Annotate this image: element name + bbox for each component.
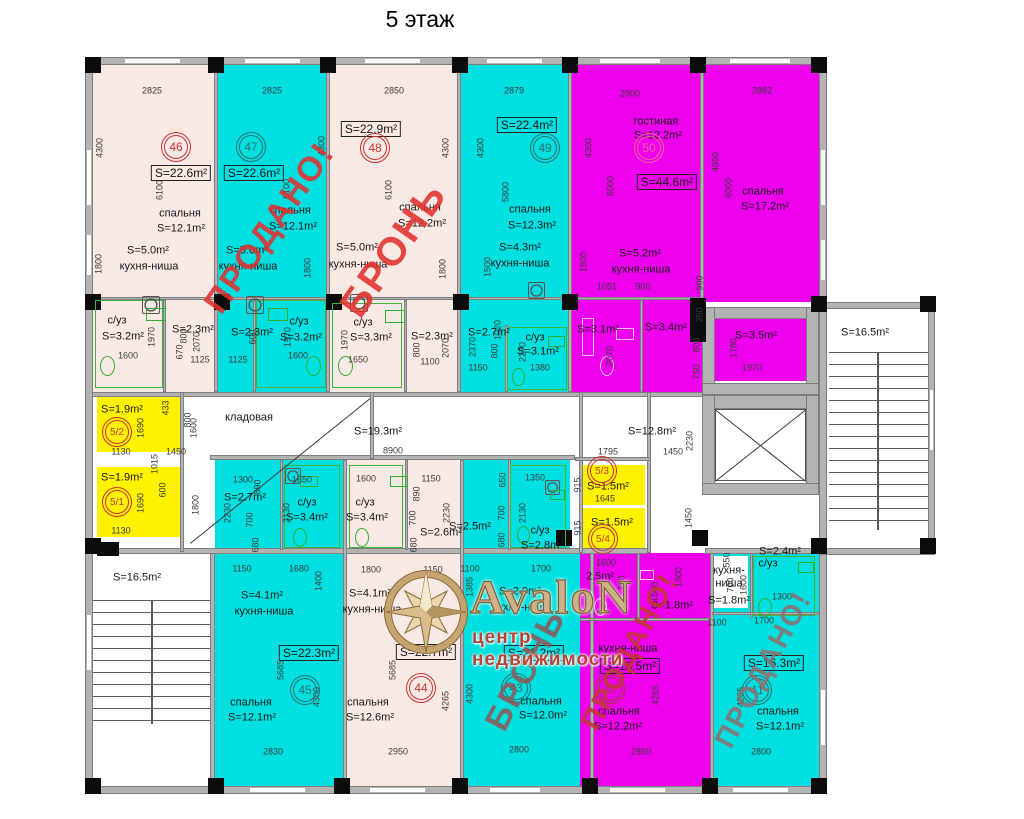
dimension-label: 1380 bbox=[530, 364, 550, 373]
dimension-label: 900 bbox=[696, 275, 705, 290]
dimension-label: 1600 bbox=[596, 559, 616, 568]
dimension-label: 915 bbox=[574, 520, 583, 535]
dimension-label: 670 bbox=[176, 344, 185, 359]
wall bbox=[214, 64, 218, 392]
dimension-label: 2130 bbox=[283, 503, 292, 523]
room-label: S=12.1m² bbox=[228, 713, 276, 724]
washer-icon bbox=[246, 296, 264, 314]
structural-column bbox=[452, 57, 468, 73]
room-label: S=16.5m² bbox=[841, 328, 889, 339]
dimension-label: 800 bbox=[693, 337, 702, 352]
window-opening bbox=[821, 690, 825, 745]
wall bbox=[92, 297, 702, 300]
room-label: S=4.1m² bbox=[241, 591, 283, 602]
toilet-icon bbox=[355, 528, 369, 547]
room-label: S=4.3m² bbox=[499, 243, 541, 254]
washer-icon bbox=[528, 282, 545, 299]
dimension-label: 6100 bbox=[385, 180, 394, 200]
structural-column bbox=[690, 57, 706, 73]
window-opening bbox=[821, 150, 825, 205]
wall bbox=[710, 553, 714, 786]
dimension-label: 1645 bbox=[595, 495, 615, 504]
dimension-label: 1051 bbox=[597, 283, 617, 292]
dimension-label: 2230 bbox=[443, 503, 452, 523]
window-opening bbox=[490, 788, 540, 792]
window-opening bbox=[87, 235, 91, 275]
dimension-label: 1800 bbox=[361, 566, 381, 575]
window-opening bbox=[87, 150, 91, 205]
dimension-label: 1650 bbox=[292, 476, 312, 485]
dimension-label: 2900 bbox=[620, 90, 640, 99]
window-opening bbox=[87, 615, 91, 670]
dimension-label: 915 bbox=[574, 477, 583, 492]
dimension-label: 1970 bbox=[341, 330, 350, 350]
dimension-label: 4265 bbox=[442, 691, 451, 711]
wall bbox=[819, 302, 935, 309]
wall bbox=[702, 395, 715, 495]
sink-icon bbox=[146, 308, 166, 321]
structural-column bbox=[562, 57, 578, 73]
room-label: S=12.0m² bbox=[519, 711, 567, 722]
dimension-label: 2830 bbox=[263, 748, 283, 757]
wall bbox=[568, 64, 572, 392]
dimension-label: 2230 bbox=[224, 503, 233, 523]
window-opening bbox=[125, 59, 180, 63]
wall bbox=[405, 460, 408, 550]
dimension-label: 4300 bbox=[466, 684, 475, 704]
dimension-label: 1600 bbox=[740, 575, 749, 595]
structural-column bbox=[811, 778, 827, 794]
room-label: S=2.3m² bbox=[172, 325, 214, 336]
storage-unit-number: 5/1 bbox=[105, 490, 129, 514]
room-label: S=5.2m² bbox=[619, 249, 661, 260]
structural-column bbox=[582, 778, 598, 794]
apartment-number: 50 bbox=[637, 136, 661, 160]
dimension-label: 8900 bbox=[383, 447, 403, 456]
wall bbox=[806, 395, 819, 495]
compass-rose-icon bbox=[384, 570, 468, 654]
room-label: S=12.8m² bbox=[628, 427, 676, 438]
apartment-number: 49 bbox=[533, 136, 557, 160]
room-label: спальня bbox=[742, 187, 784, 198]
room-label: S=3.3m² bbox=[350, 333, 392, 344]
apartment-total-area-label: S=22.4m² bbox=[497, 117, 557, 133]
dimension-label: 4265 bbox=[652, 685, 661, 705]
dimension-label: 1690 bbox=[137, 418, 146, 438]
dimension-label: 1650 bbox=[348, 356, 368, 365]
dimension-label: 700 bbox=[409, 510, 418, 525]
room-label: с/уз bbox=[289, 317, 308, 328]
wall bbox=[806, 307, 819, 393]
dimension-label: 1600 bbox=[118, 352, 138, 361]
wall bbox=[92, 548, 648, 554]
dimension-label: 4950 bbox=[712, 152, 721, 172]
dimension-label: 6000 bbox=[725, 178, 734, 198]
structural-column bbox=[702, 778, 718, 794]
sink-icon bbox=[390, 476, 408, 487]
floor-plan: 5 этаж AvaloN центр недвижимости 2825282… bbox=[0, 0, 1024, 819]
structural-column bbox=[320, 57, 336, 73]
apartment-total-area-label: S=22.6m² bbox=[224, 165, 284, 181]
staircase-divider bbox=[877, 352, 879, 530]
room-label: S=1.5m² bbox=[591, 518, 633, 529]
structural-column bbox=[920, 538, 936, 554]
apartment-number: 45 bbox=[293, 678, 317, 702]
dimension-label: 1600 bbox=[288, 352, 308, 361]
dimension-label: 1800 bbox=[304, 258, 313, 278]
dimension-label: 1125 bbox=[228, 356, 247, 365]
dimension-label: 1150 bbox=[468, 364, 487, 373]
wall bbox=[343, 460, 347, 786]
structural-column bbox=[85, 778, 101, 794]
dimension-label: 1130 bbox=[111, 527, 130, 536]
room-label: кухня-ниша bbox=[612, 265, 671, 276]
dimension-label: 890 bbox=[413, 486, 422, 501]
wall bbox=[702, 395, 819, 409]
dimension-label: 800 bbox=[491, 343, 500, 358]
room-label: с/уз bbox=[355, 498, 374, 509]
dimension-label: 2950 bbox=[388, 748, 408, 757]
wall bbox=[702, 483, 819, 495]
dimension-label: 1970 bbox=[742, 364, 762, 373]
room-label: S=2.3m² bbox=[231, 328, 273, 339]
dimension-label: 2825 bbox=[142, 87, 162, 96]
wall bbox=[210, 553, 215, 786]
dimension-label: 1015 bbox=[151, 454, 160, 474]
dimension-label: 2879 bbox=[504, 87, 524, 96]
wall bbox=[647, 392, 651, 553]
dimension-label: 680 bbox=[252, 537, 261, 552]
room-label: с/уз bbox=[107, 316, 126, 327]
wall bbox=[819, 548, 935, 555]
structural-column bbox=[97, 542, 119, 556]
room-label: S=3.4m² bbox=[286, 513, 328, 524]
logo-subtitle: центр недвижимости bbox=[472, 627, 654, 671]
structural-column bbox=[692, 530, 708, 546]
room-label: кладовая bbox=[225, 413, 273, 424]
structural-column bbox=[85, 57, 101, 73]
window-opening bbox=[250, 788, 305, 792]
wall bbox=[640, 300, 643, 392]
dimension-label: 2800 bbox=[509, 746, 529, 755]
room-label: S=3.4m² bbox=[645, 323, 687, 334]
window-opening bbox=[930, 390, 933, 450]
room-label: гостиная bbox=[634, 117, 679, 128]
room-label: S=3.1m² bbox=[517, 347, 559, 358]
dimension-label: 1100 bbox=[420, 358, 439, 367]
wall bbox=[210, 455, 575, 460]
dimension-label: 2130 bbox=[519, 503, 528, 523]
room-label: S=19.3m² bbox=[354, 427, 402, 438]
dimension-label: 5800 bbox=[502, 182, 511, 202]
window-opening bbox=[370, 788, 425, 792]
room-label: S=1.8m² bbox=[708, 596, 750, 607]
sink-icon bbox=[385, 310, 405, 323]
dimension-label: 2800 bbox=[751, 748, 771, 757]
wall bbox=[457, 64, 461, 392]
page-title: 5 этаж bbox=[340, 6, 500, 33]
room-label: спальня bbox=[757, 707, 799, 718]
dimension-label: 700 bbox=[727, 577, 736, 592]
dimension-label: 1970 bbox=[148, 327, 157, 347]
apartment-total-area-label: S=22.6m² bbox=[151, 165, 211, 181]
room-label: S=2.4m² bbox=[759, 547, 801, 558]
storage-unit-number: 5/2 bbox=[105, 420, 129, 444]
dimension-label: 1600 bbox=[190, 418, 199, 438]
structural-column bbox=[452, 778, 468, 794]
dimension-label: 1800 bbox=[192, 495, 201, 515]
room-label: с/уз bbox=[758, 559, 777, 570]
room-label: S=12.1m² bbox=[157, 224, 205, 235]
structural-column bbox=[811, 538, 827, 554]
apartment-total-area-label: S=22.3m² bbox=[279, 645, 339, 661]
room-label: S=2.7m² bbox=[468, 328, 510, 339]
room-label: спальня bbox=[509, 205, 551, 216]
dimension-label: 2850 bbox=[384, 87, 404, 96]
room-label: кухня-ниша bbox=[491, 259, 550, 270]
dimension-label: 1690 bbox=[137, 493, 146, 513]
sink-icon bbox=[798, 562, 814, 573]
logo-name: AvaloN bbox=[470, 570, 633, 625]
wall bbox=[700, 64, 704, 304]
dimension-label: 1400 bbox=[315, 571, 324, 591]
dimension-label: 750 bbox=[693, 364, 702, 379]
apartment-total-area-label: S=44.6m² bbox=[637, 174, 697, 190]
room-label: S=3.2m² bbox=[280, 333, 322, 344]
window-opening bbox=[730, 59, 790, 63]
dimension-label: 6100 bbox=[156, 180, 165, 200]
dimension-label: 4300 bbox=[442, 138, 451, 158]
dimension-label: 1300 bbox=[233, 476, 253, 485]
dimension-label: 6000 bbox=[607, 176, 616, 196]
dimension-label: 890 bbox=[254, 479, 263, 494]
toilet-icon bbox=[758, 598, 772, 617]
dimension-label: 800 bbox=[413, 342, 422, 357]
dimension-label: 1450 bbox=[663, 448, 683, 457]
structural-column bbox=[208, 778, 224, 794]
wall bbox=[326, 64, 330, 392]
room-label: спальня bbox=[159, 209, 201, 220]
room-label: S=16.5m² bbox=[113, 573, 161, 584]
sink-icon bbox=[550, 490, 565, 500]
structural-column bbox=[562, 294, 578, 310]
window-opening bbox=[600, 59, 660, 63]
dimension-label: 680 bbox=[498, 532, 507, 547]
dimension-label: 1795 bbox=[598, 448, 618, 457]
dimension-label: 1125 bbox=[190, 356, 209, 365]
room-label: S=2.5m² bbox=[449, 522, 491, 533]
storage-unit-number: 5/3 bbox=[590, 459, 614, 483]
structural-column bbox=[811, 57, 827, 73]
agency-logo: AvaloN центр недвижимости bbox=[384, 570, 654, 660]
toilet-icon bbox=[306, 356, 321, 376]
dimension-label: 433 bbox=[162, 400, 171, 415]
structural-column bbox=[920, 296, 936, 312]
dimension-label: 680 bbox=[410, 537, 419, 552]
dimension-label: 1680 bbox=[289, 565, 309, 574]
apartment-number: 48 bbox=[363, 136, 387, 160]
dimension-label: 5685 bbox=[277, 660, 286, 680]
dimension-label: 900 bbox=[635, 283, 650, 292]
room-label: кухня-ниша bbox=[120, 262, 179, 273]
storage-unit-number: 5/4 bbox=[591, 527, 615, 551]
dimension-label: 4300 bbox=[585, 138, 594, 158]
window-opening bbox=[610, 788, 665, 792]
dimension-label: 700 bbox=[498, 505, 507, 520]
apartment-total-area-label: S=22.9m² bbox=[341, 121, 401, 137]
dimension-label: 5685 bbox=[389, 660, 398, 680]
dimension-label: 2882 bbox=[752, 87, 772, 96]
room-label: S=1.9m² bbox=[101, 405, 143, 416]
room-label: S=3.4m² bbox=[346, 513, 388, 524]
room-label: S=3.2m² bbox=[102, 332, 144, 343]
room-label: S=2.3m² bbox=[411, 332, 453, 343]
toilet-icon bbox=[512, 368, 525, 386]
window-opening bbox=[365, 59, 420, 63]
structural-column bbox=[334, 778, 350, 794]
structural-column bbox=[208, 57, 224, 73]
room-label: S=3.1m² bbox=[577, 325, 619, 336]
room-label: S=2.8m² bbox=[521, 541, 563, 552]
room-label: с/уз bbox=[530, 526, 549, 537]
room-label: спальня bbox=[230, 698, 272, 709]
room-label: спальня bbox=[347, 698, 389, 709]
dimension-label: 4300 bbox=[96, 138, 105, 158]
room-label: с/уз bbox=[297, 498, 316, 509]
dimension-label: 1100 bbox=[707, 619, 726, 628]
dimension-label: 1150 bbox=[232, 565, 251, 574]
dimension-label: 1800 bbox=[95, 254, 104, 274]
room-label: S=12.6m² bbox=[346, 713, 394, 724]
window-opening bbox=[733, 788, 788, 792]
window-opening bbox=[245, 59, 300, 63]
dimension-label: 1130 bbox=[111, 448, 130, 457]
wall bbox=[575, 457, 651, 461]
dimension-label: 2825 bbox=[262, 87, 282, 96]
room-label: кухня-ниша bbox=[235, 607, 294, 618]
staircase-divider bbox=[151, 600, 153, 724]
dimension-label: 1450 bbox=[166, 448, 186, 457]
dimension-label: 1150 bbox=[421, 475, 440, 484]
room-label: S=12.3m² bbox=[508, 221, 556, 232]
dimension-label: 1450 bbox=[685, 508, 694, 528]
room-label: S=17.2m² bbox=[741, 202, 789, 213]
dimension-label: 650 bbox=[499, 472, 508, 487]
toilet-icon bbox=[293, 528, 307, 547]
toilet-icon bbox=[100, 356, 115, 376]
dimension-label: 1600 bbox=[356, 475, 376, 484]
dimension-label: 1800 bbox=[439, 259, 448, 279]
dimension-label: 2230 bbox=[686, 431, 695, 451]
apartment-number: 47 bbox=[239, 135, 263, 159]
structural-column bbox=[453, 294, 469, 310]
dimension-label: 600 bbox=[159, 482, 168, 497]
wall bbox=[702, 383, 819, 395]
window-opening bbox=[821, 240, 825, 280]
window-opening bbox=[487, 59, 542, 63]
room-label: S=5.0m² bbox=[127, 246, 169, 257]
structural-column bbox=[811, 296, 827, 312]
dimension-label: 4300 bbox=[477, 138, 486, 158]
room-label: S=12.1m² bbox=[756, 722, 804, 733]
dimension-label: 350 bbox=[696, 307, 705, 322]
dimension-label: 2370 bbox=[469, 337, 478, 357]
dimension-label: 1800 bbox=[580, 252, 589, 272]
room-label: S=1.9m² bbox=[101, 473, 143, 484]
sink-icon bbox=[268, 308, 288, 321]
room-label: с/уз bbox=[525, 333, 544, 344]
dimension-label: 1350 bbox=[525, 474, 545, 483]
room-label: S=1.5m² bbox=[587, 482, 629, 493]
wall bbox=[702, 307, 819, 319]
room-label: S=3.5m² bbox=[735, 331, 777, 342]
dimension-label: 2070 bbox=[606, 346, 615, 366]
dimension-label: 700 bbox=[246, 512, 255, 527]
dimension-label: 2850 bbox=[631, 748, 651, 757]
apartment-number: 44 bbox=[409, 676, 433, 700]
dimension-label: 550 bbox=[723, 552, 732, 567]
apartment-number: 46 bbox=[164, 135, 188, 159]
